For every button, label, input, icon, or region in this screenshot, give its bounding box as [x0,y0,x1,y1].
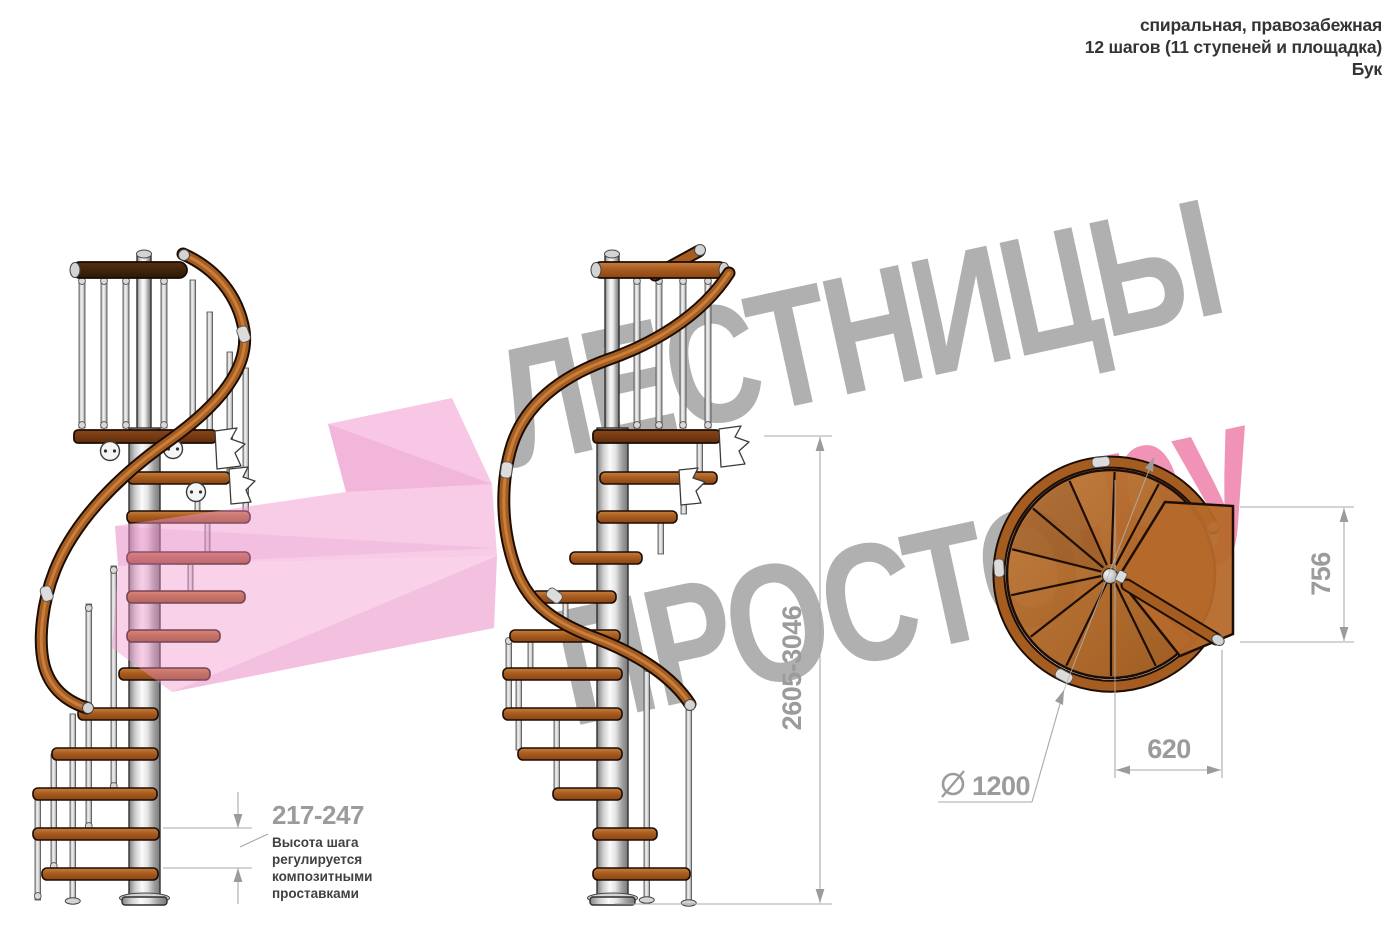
break-symbol [229,467,255,504]
diameter-icon [942,771,964,797]
drawing-canvas: ЛЕСТНИЦЫ ПРОСТО.ру [0,0,1400,950]
svg-text:Высота шага: Высота шага [272,835,359,850]
break-symbol [215,428,245,469]
dim-landing-width-label: 620 [1147,734,1191,764]
header-material: Бук [1085,58,1382,80]
side-view-left [33,250,255,906]
break-symbol [719,426,749,467]
dim-total-height-label: 2605-3046 [777,605,807,730]
dim-step-height: 217-247 Высота шага регулируется компози… [163,792,372,904]
svg-text:проставками: проставками [272,886,359,901]
header-type: спиральная, правозабежная [1085,14,1382,36]
header-steps: 12 шагов (11 ступеней и площадка) [1085,36,1382,58]
svg-text:регулируется: регулируется [272,852,362,867]
side-view-center [500,245,749,907]
staircase-drawing: 2605-3046 217-247 Высота шага регулирует… [0,0,1400,950]
product-header: спиральная, правозабежная 12 шагов (11 с… [1085,14,1382,80]
dim-diameter-label: 1200 [972,771,1030,801]
svg-text:композитными: композитными [272,869,372,884]
dim-landing-depth: 756 [1240,507,1354,642]
dim-landing-depth-label: 756 [1306,552,1336,596]
railing-left [70,262,187,428]
dim-step-height-label: 217-247 [272,800,364,830]
plan-view [993,456,1233,686]
